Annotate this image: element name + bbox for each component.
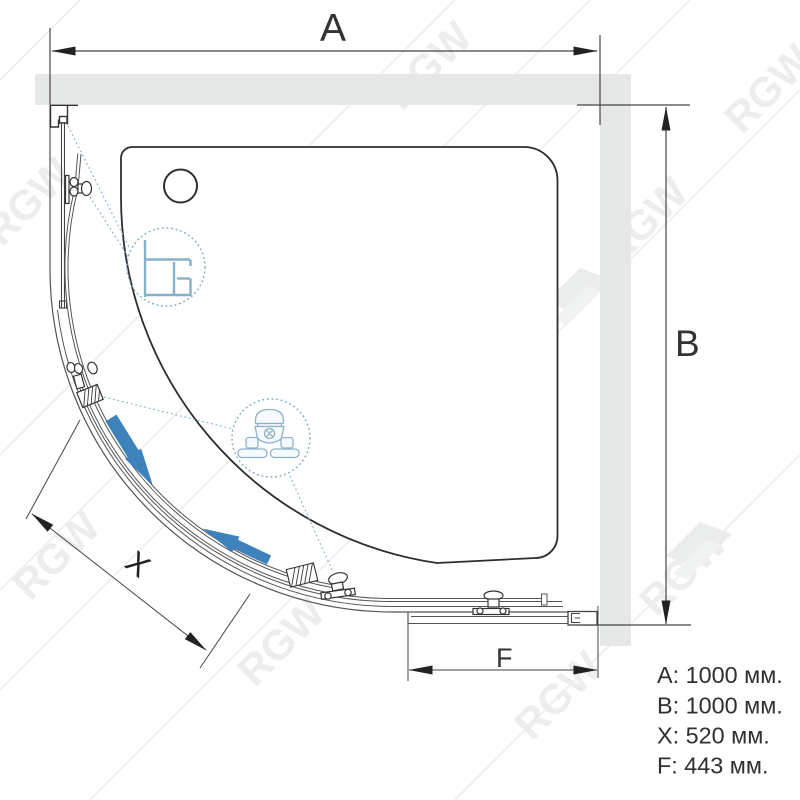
svg-text:A: 1000 мм.: A: 1000 мм. xyxy=(657,662,783,688)
svg-text:B: 1000 мм.: B: 1000 мм. xyxy=(657,693,783,719)
svg-text:A: A xyxy=(320,7,346,50)
svg-text:F: 443 мм.: F: 443 мм. xyxy=(657,753,768,779)
svg-text:F: F xyxy=(496,643,513,673)
svg-text:X: 520 мм.: X: 520 мм. xyxy=(657,723,770,749)
svg-text:B: B xyxy=(675,323,700,364)
